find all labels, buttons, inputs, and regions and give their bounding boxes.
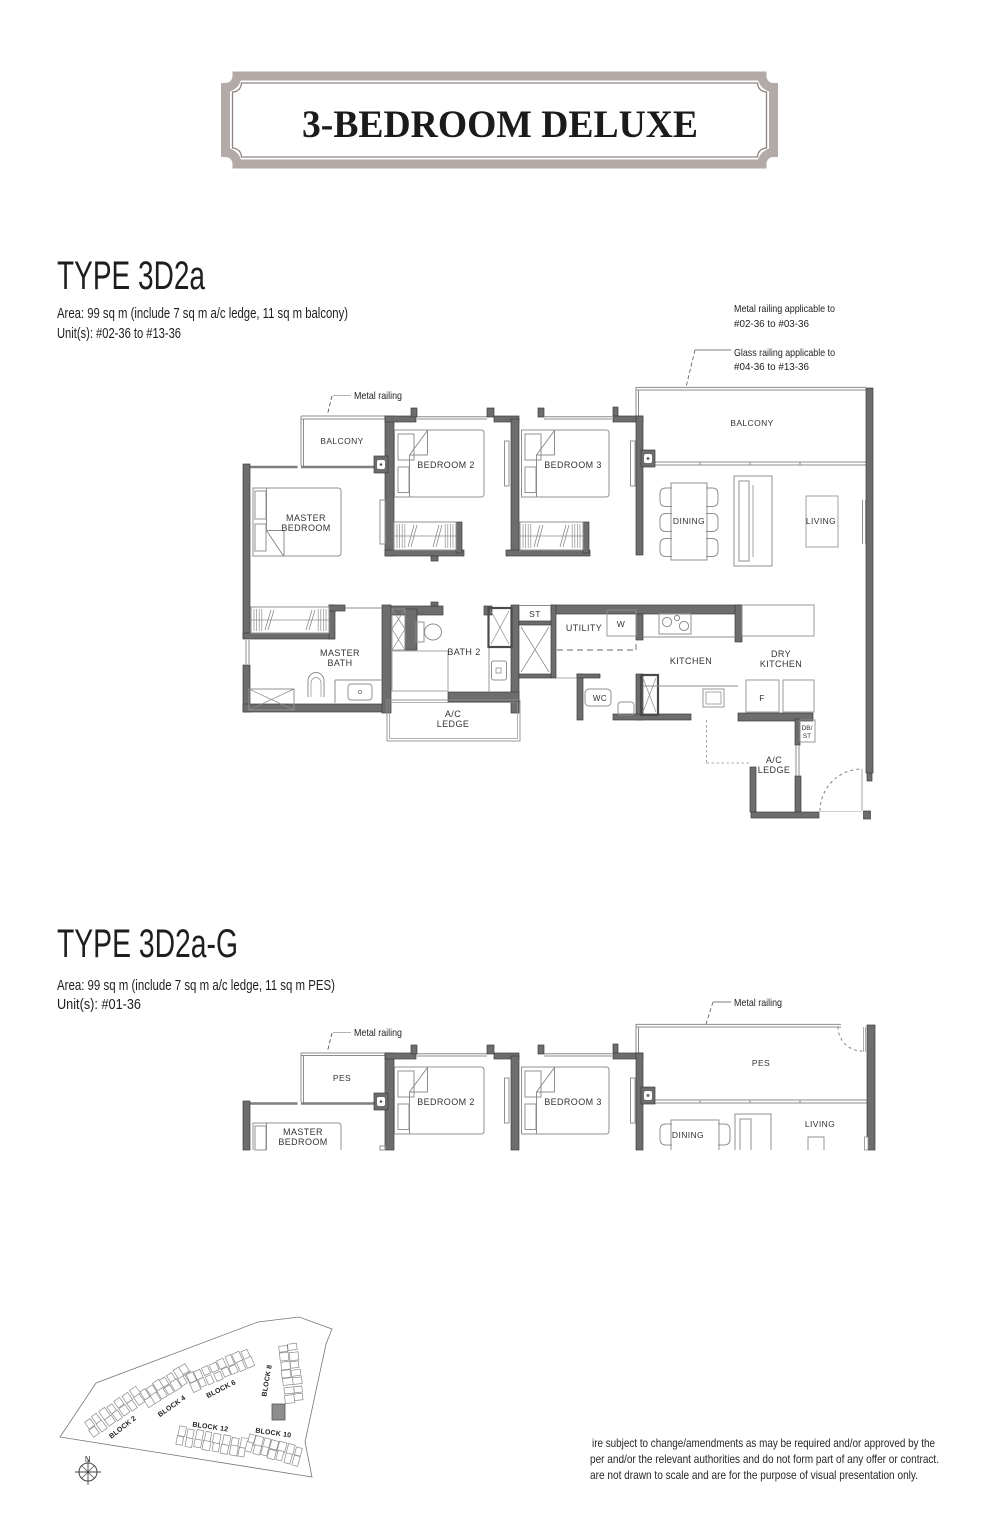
- svg-text:DINING: DINING: [672, 1130, 704, 1140]
- svg-text:F: F: [759, 693, 765, 703]
- svg-text:BATH: BATH: [328, 658, 353, 668]
- svg-text:ST: ST: [803, 733, 811, 740]
- svg-text:BEDROOM: BEDROOM: [281, 523, 330, 533]
- svg-text:per and/or the relevant author: per and/or the relevant authorities and …: [590, 1452, 939, 1466]
- svg-text:BLOCK 8: BLOCK 8: [261, 1364, 273, 1397]
- svg-text:3-BEDROOM DELUXE: 3-BEDROOM DELUXE: [302, 103, 698, 146]
- svg-text:KITCHEN: KITCHEN: [670, 656, 712, 666]
- svg-text:PES: PES: [752, 1058, 770, 1068]
- svg-text:UTILITY: UTILITY: [566, 623, 602, 633]
- svg-text:BEDROOM 3: BEDROOM 3: [544, 1097, 602, 1107]
- svg-text:Unit(s): #01-36: Unit(s): #01-36: [57, 997, 141, 1013]
- svg-text:MASTER: MASTER: [286, 513, 326, 523]
- svg-text:Area: 99 sq m (include 7 sq m: Area: 99 sq m (include 7 sq m a/c ledge,…: [57, 978, 335, 994]
- svg-text:BALCONY: BALCONY: [730, 418, 773, 428]
- svg-text:TYPE 3D2a: TYPE 3D2a: [57, 254, 206, 298]
- svg-text:Metal railing applicable to: Metal railing applicable to: [734, 303, 835, 315]
- svg-text:LEDGE: LEDGE: [437, 719, 470, 729]
- svg-text:are not drawn to scale and are: are not drawn to scale and are for the p…: [590, 1468, 918, 1482]
- svg-text:Unit(s): #02-36 to #13-36: Unit(s): #02-36 to #13-36: [57, 326, 181, 342]
- svg-text:MASTER: MASTER: [283, 1127, 323, 1137]
- svg-text:DINING: DINING: [673, 516, 705, 526]
- svg-text:ST: ST: [529, 609, 541, 619]
- svg-text:BEDROOM 2: BEDROOM 2: [417, 1097, 475, 1107]
- svg-text:BALCONY: BALCONY: [320, 436, 363, 446]
- svg-text:A/C: A/C: [766, 755, 782, 765]
- svg-text:LEDGE: LEDGE: [758, 765, 791, 775]
- svg-text:LIVING: LIVING: [806, 516, 836, 526]
- svg-text:ire subject to change/amendmen: ire subject to change/amendments as may …: [592, 1436, 935, 1450]
- svg-text:W: W: [617, 619, 625, 629]
- svg-text:BEDROOM 2: BEDROOM 2: [417, 460, 475, 470]
- svg-text:#02-36 to #03-36: #02-36 to #03-36: [734, 318, 809, 330]
- svg-text:N: N: [85, 1455, 91, 1464]
- svg-text:DRY: DRY: [771, 649, 791, 659]
- svg-text:Metal railing: Metal railing: [354, 1027, 402, 1039]
- svg-text:PES: PES: [333, 1073, 351, 1083]
- svg-text:DB/: DB/: [802, 725, 813, 732]
- svg-text:WC: WC: [593, 694, 607, 703]
- svg-text:BEDROOM 3: BEDROOM 3: [544, 460, 602, 470]
- svg-text:LIVING: LIVING: [805, 1119, 835, 1129]
- svg-text:TYPE 3D2a-G: TYPE 3D2a-G: [57, 922, 238, 966]
- svg-text:BEDROOM: BEDROOM: [278, 1137, 327, 1147]
- svg-text:MASTER: MASTER: [320, 648, 360, 658]
- svg-text:BATH 2: BATH 2: [447, 647, 480, 657]
- svg-text:A/C: A/C: [445, 709, 461, 719]
- svg-text:KITCHEN: KITCHEN: [760, 659, 802, 669]
- svg-text:Metal railing: Metal railing: [354, 390, 402, 402]
- svg-text:Metal railing: Metal railing: [734, 997, 782, 1009]
- svg-text:#04-36 to #13-36: #04-36 to #13-36: [734, 361, 809, 373]
- svg-text:Area: 99 sq m (include 7 sq m: Area: 99 sq m (include 7 sq m a/c ledge,…: [57, 306, 348, 322]
- svg-text:Glass railing applicable to: Glass railing applicable to: [734, 347, 835, 359]
